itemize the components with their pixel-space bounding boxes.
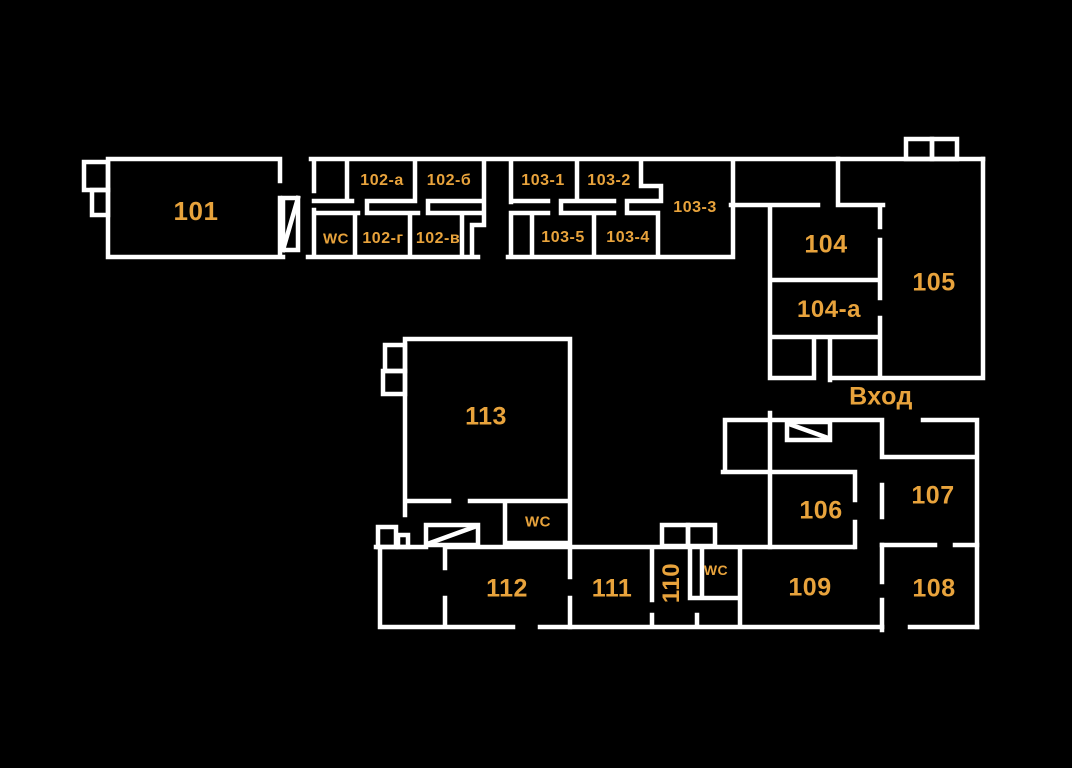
room-label-113: 113 <box>465 405 507 430</box>
room-label-102g: 102-г <box>362 231 403 247</box>
room-label-wc-2: WC <box>525 515 551 530</box>
room-label-101: 101 <box>174 198 219 224</box>
room-label-wc-1: WC <box>323 232 349 247</box>
room-label-103-2: 103-2 <box>587 173 630 189</box>
floor-plan: 101102-а102-бWC102-г102-в103-1103-2103-3… <box>0 0 1072 768</box>
room-label-111: 111 <box>592 577 632 602</box>
room-label-102v: 102-в <box>416 231 460 247</box>
room-label-102a: 102-а <box>360 173 403 189</box>
room-label-109: 109 <box>788 576 831 601</box>
room-label-108: 108 <box>912 577 955 602</box>
room-labels: 101102-а102-бWC102-г102-в103-1103-2103-3… <box>0 0 1072 768</box>
room-label-103-5: 103-5 <box>541 230 584 246</box>
room-label-106: 106 <box>799 499 842 524</box>
room-label-110: 110 <box>660 563 684 603</box>
room-label-105: 105 <box>912 271 955 296</box>
room-label-104: 104 <box>804 233 847 258</box>
room-label-103-1: 103-1 <box>521 173 564 189</box>
room-label-vhod: Вход <box>849 385 913 410</box>
room-label-104a: 104-а <box>797 298 861 322</box>
room-label-103-4: 103-4 <box>606 230 649 246</box>
room-label-107: 107 <box>911 484 954 509</box>
room-label-102b: 102-б <box>427 173 471 189</box>
room-label-wc-3: WC <box>704 563 728 577</box>
room-label-112: 112 <box>486 577 528 602</box>
room-label-103-3: 103-3 <box>673 200 716 216</box>
